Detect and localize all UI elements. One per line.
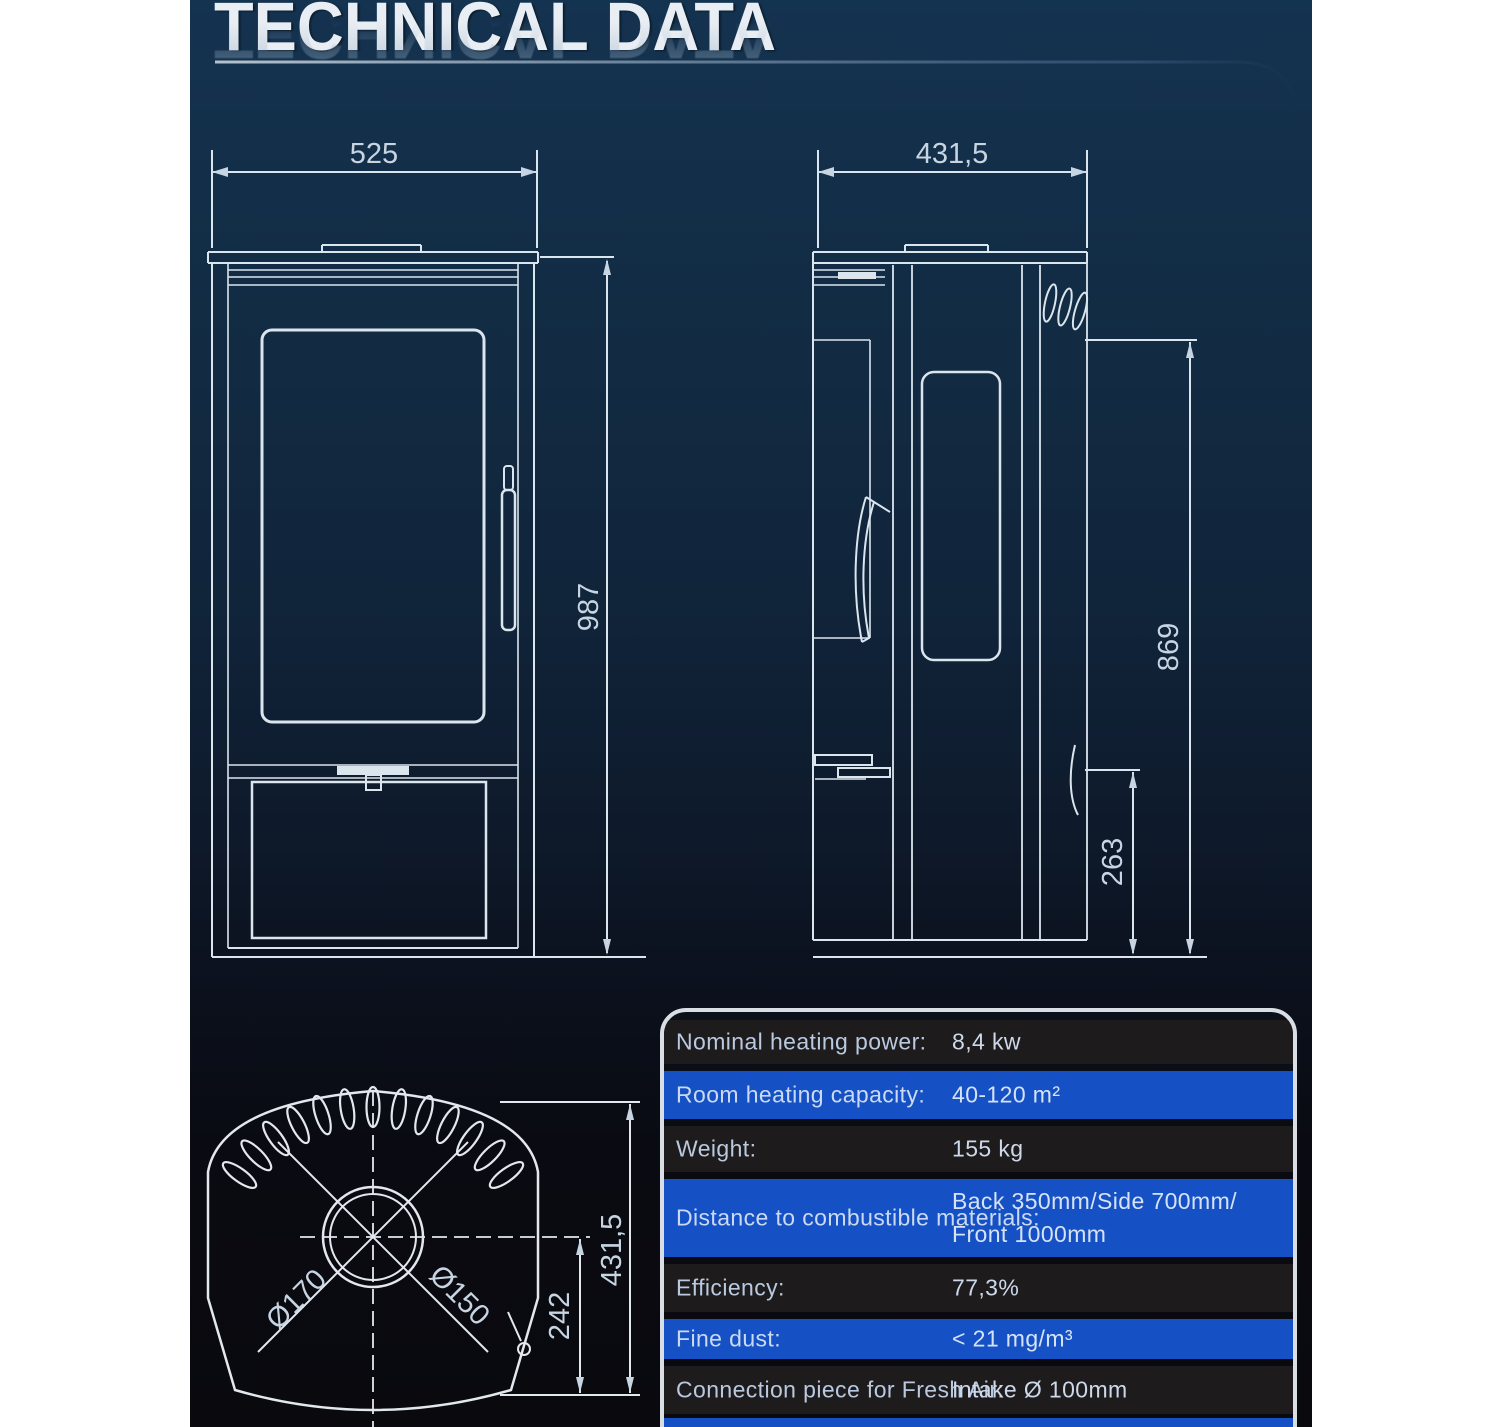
spec-value: 155 kg: [952, 1136, 1023, 1163]
spec-value: Intake Ø 100mm: [952, 1377, 1128, 1404]
front-width-dimension: 525: [212, 138, 537, 248]
table-row: Efficiency: 77,3%: [664, 1264, 1293, 1312]
spec-label: Efficiency:: [676, 1275, 785, 1302]
side-lower-height-label: 263: [1097, 838, 1129, 886]
spec-label: Nominal heating power:: [676, 1029, 926, 1056]
front-height-dimension: 987: [540, 257, 614, 955]
side-depth-label: 431,5: [916, 138, 989, 170]
table-row: Room heating capacity: 40-120 m²: [664, 1071, 1293, 1119]
spec-value: < 21 mg/m³: [952, 1326, 1073, 1353]
datasheet-page: TECHNICAL DATA TECHNICAL DATA 525: [190, 0, 1312, 1427]
side-view-drawing: 431,5: [813, 138, 1207, 957]
table-row: Fine dust: < 21 mg/m³: [664, 1319, 1293, 1359]
table-row: Nominal heating power: 8,4 kw: [664, 1020, 1293, 1064]
spec-label: Weight:: [676, 1136, 756, 1163]
side-upper-height-label: 869: [1153, 623, 1185, 671]
front-width-label: 525: [350, 138, 398, 170]
table-row: Distance to combustible materials: Back …: [664, 1179, 1293, 1257]
top-depth-dimension: 431,5: [500, 1102, 640, 1393]
top-outer-diameter-label: Ø170: [260, 1263, 333, 1336]
front-view-drawing: 525: [208, 138, 646, 957]
spec-value-line2: Front 1000mm: [952, 1218, 1237, 1251]
front-height-label: 987: [573, 583, 605, 631]
spec-value: 77,3%: [952, 1275, 1019, 1302]
spec-value-line1: Back 350mm/Side 700mm/: [952, 1185, 1237, 1218]
spec-label: Fine dust:: [676, 1326, 781, 1353]
spec-value: 40-120 m²: [952, 1082, 1060, 1109]
spec-value: Back 350mm/Side 700mm/ Front 1000mm: [952, 1185, 1237, 1251]
table-row: Weight: 155 kg: [664, 1126, 1293, 1172]
top-flue-diameter-label: Ø150: [423, 1259, 496, 1332]
spec-value: 8,4 kw: [952, 1029, 1021, 1056]
top-offset-label: 242: [544, 1292, 576, 1340]
top-view-drawing: Ø170 Ø150 242 431,5: [208, 1087, 640, 1427]
spec-label: Room heating capacity:: [676, 1082, 925, 1109]
table-row-partial: [664, 1418, 1293, 1427]
side-lower-height-dimension: 263: [1085, 770, 1140, 955]
table-row: Connection piece for Fresh Air: Intake Ø…: [664, 1366, 1293, 1414]
side-depth-dimension: 431,5: [818, 138, 1087, 248]
top-depth-label: 431,5: [596, 1214, 628, 1287]
spec-table: Nominal heating power: 8,4 kw Room heati…: [660, 1008, 1297, 1427]
